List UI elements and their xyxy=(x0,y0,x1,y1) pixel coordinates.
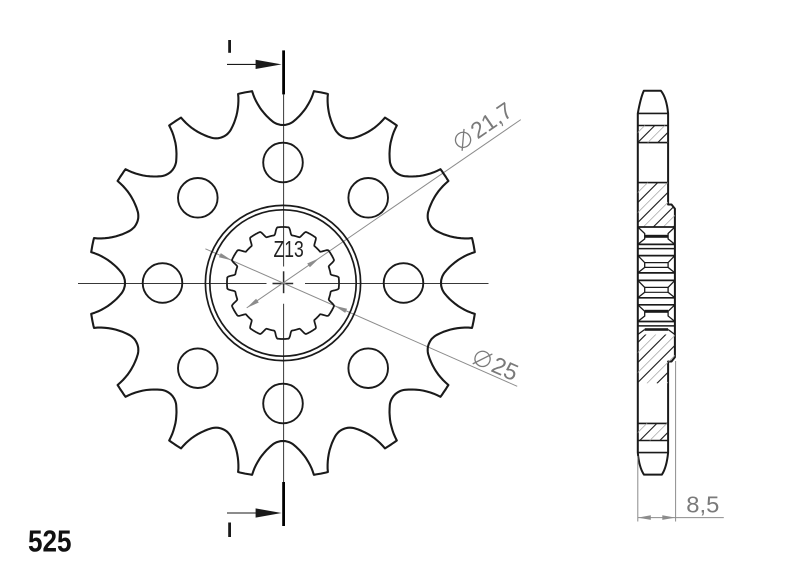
svg-text:525: 525 xyxy=(28,523,72,558)
svg-text:8,5: 8,5 xyxy=(686,491,719,517)
svg-text:Z13: Z13 xyxy=(274,236,304,262)
